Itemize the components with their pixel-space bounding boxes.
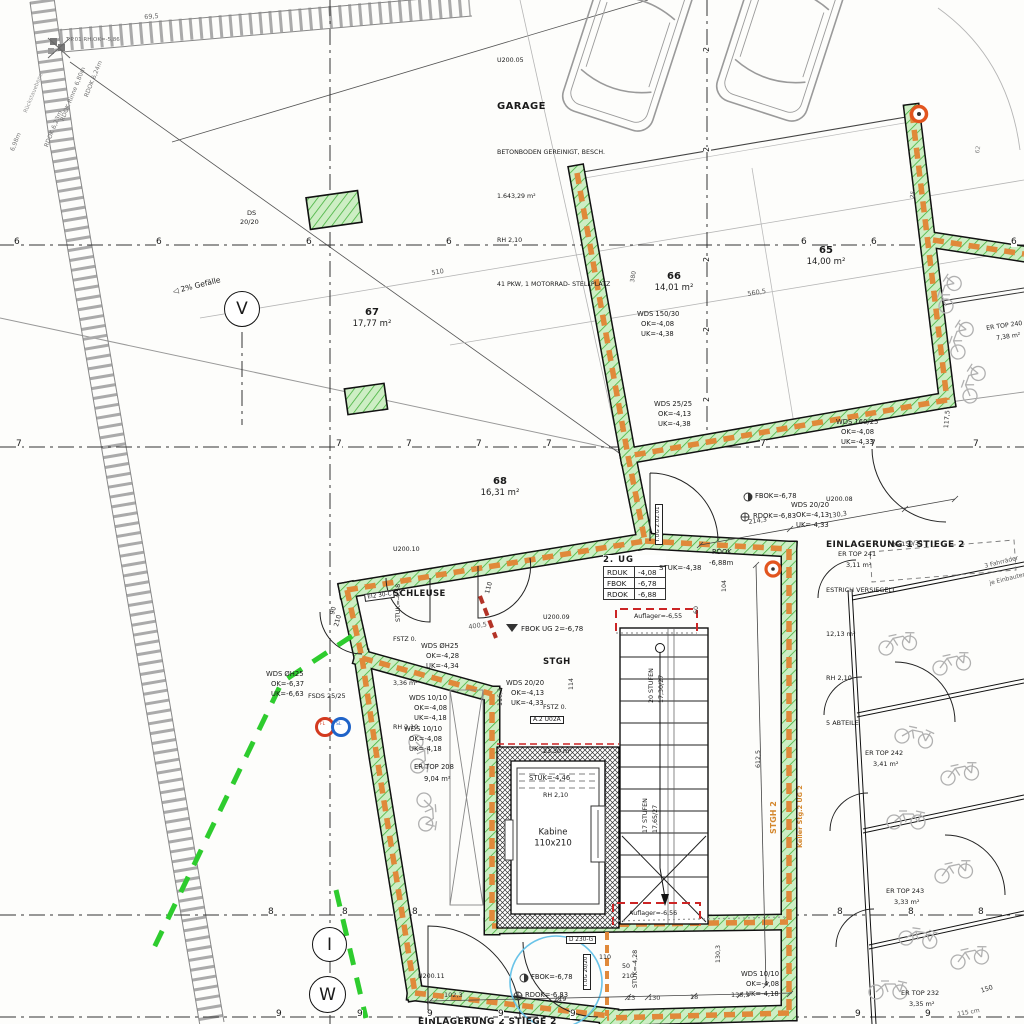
annotation-text: 7 — [336, 440, 342, 449]
level-table-grid: RDUK-4,08 FBOK-6,78 RDOK-6,88 — [603, 566, 666, 600]
annotation-text: 130,3 — [716, 945, 723, 963]
annotation-text: UK=-4,33 — [841, 439, 874, 446]
annotation-text: 62 — [975, 145, 983, 154]
annotation-text: 7 — [16, 440, 22, 449]
garage-room-code: U200.05 — [497, 57, 610, 64]
annotation-text: OK=-4,08 — [414, 705, 447, 712]
annotation-text: STUK=-4,46 — [529, 775, 570, 782]
annotation-text: 9 — [570, 1010, 576, 1019]
annotation-text: 7 — [760, 440, 766, 449]
annotation-text: UK=-4,18 — [414, 715, 447, 722]
annotation-text: 2 — [703, 327, 711, 332]
annotation-text: STGH 2 — [770, 801, 778, 834]
annotation-text: WDS 25/25 — [654, 401, 692, 408]
annotation-text: UK=-4,34 — [426, 663, 459, 670]
annotation-text: 9 — [357, 1010, 363, 1019]
annotation-text: UK=-4,33 — [511, 700, 544, 707]
room-number: 67 — [353, 307, 392, 319]
axis-letter: V — [236, 299, 248, 319]
annotation-text: OK=-4,08 — [746, 981, 779, 988]
annotation-text: 20/20 — [240, 219, 259, 226]
annotation-text: 2 — [703, 47, 711, 52]
annotation-text: 6 — [446, 238, 452, 247]
annotation-text: OK=-4,13 — [511, 690, 544, 697]
annotation-text: ER TOP 241 — [838, 551, 876, 558]
annotation-text: 9 — [498, 1010, 504, 1019]
annotation-text: OK=-4,13 — [658, 411, 691, 418]
annotation-text: ER TOP 243 — [886, 888, 924, 895]
annotation-text: WDS ØH25 — [421, 643, 459, 650]
annotation-text: STUK=-4,38 — [659, 565, 701, 572]
annotation-text: 8 — [342, 908, 348, 917]
einlagerung1-compartments: 5 ABTEILE — [826, 720, 965, 727]
lift-cabin-label: Kabine 110x210 — [534, 827, 571, 848]
room-number: 65 — [807, 245, 846, 257]
annotation-text: A.2 U02A — [530, 716, 564, 724]
room-label-67: 67 17,77 m² — [353, 307, 392, 329]
staircase — [620, 628, 708, 924]
annotation-text: 219 — [554, 996, 566, 1003]
annotation-text: Auflager=-6,56 — [629, 911, 677, 918]
annotation-text: WDS 10/10 — [409, 695, 447, 702]
room-number: 66 — [655, 271, 694, 283]
axis-circle-v: V — [224, 291, 260, 327]
level-row-value: -6,88 — [635, 589, 666, 600]
level-row-key: RDUK — [604, 567, 635, 578]
annotation-text: 7 — [476, 440, 482, 449]
garage-title-block: U200.05 GARAGE BETONBODEN GEREINIGT, BES… — [497, 20, 610, 307]
stgh-height: RH 2,10 — [543, 792, 572, 799]
annotation-text: 6 — [156, 238, 162, 247]
annotation-text: 2 — [703, 257, 711, 262]
annotation-text: T.P.01 RH.OK=-5,86 — [66, 38, 120, 44]
annotation-text: OK=-4,08 — [409, 736, 442, 743]
annotation-text: 17,65/27 — [653, 805, 660, 833]
annotation-text: SL — [336, 723, 341, 728]
annotation-text: FL — [320, 723, 325, 728]
annotation-text: FBOK=-6,78 — [531, 974, 573, 981]
annotation-text: T.UG 2.02.01 — [655, 504, 663, 545]
annotation-text: UK=-4,38 — [658, 421, 691, 428]
level-row-key: RDOK — [604, 589, 635, 600]
annotation-text: 210 — [622, 974, 634, 981]
annotation-text: 7 — [973, 440, 979, 449]
annotation-text: 138,3 — [731, 992, 750, 999]
level-row-value: -6,78 — [635, 578, 666, 589]
annotation-text: WDS 10/10 — [404, 726, 442, 733]
annotation-text: 2 — [703, 147, 711, 152]
annotation-text: ER TOP 232 — [901, 990, 939, 997]
annotation-text: -6,88m — [709, 560, 733, 567]
annotation-text: WDS 160/25 — [836, 419, 878, 426]
room-area: 17,77 m² — [353, 319, 392, 329]
room-area: 16,31 m² — [481, 488, 520, 498]
schleuse-room-code: U200.10 — [393, 546, 446, 553]
annotation-text: 18 — [690, 994, 698, 1001]
concrete-column-block — [306, 191, 362, 230]
annotation-text: 7 — [546, 440, 552, 449]
annotation-text: UK=-6,63 — [271, 691, 304, 698]
einlagerung1-title-block: U200.08 EINLAGERUNG 1 STIEGE 2 ESTRICH V… — [826, 459, 965, 746]
stgh-room-name: STGH — [543, 658, 572, 668]
annotation-text: 6 — [871, 238, 877, 247]
einlagerung1-height: RH 2,10 — [826, 675, 965, 682]
annotation-text: 8 — [412, 908, 418, 917]
annotation-text: UK=-4,33 — [796, 522, 829, 529]
axis-circle-i: I — [312, 927, 347, 962]
annotation-text: 130 — [648, 995, 660, 1002]
room-label-66: 66 14,01 m² — [655, 271, 694, 293]
room-area: 14,00 m² — [807, 257, 846, 267]
annotation-text: WDS 20/20 — [506, 680, 544, 687]
axis-circle-w: W — [309, 976, 346, 1013]
annotation-text: Auflager=-6,55 — [634, 614, 682, 621]
annotation-text: 3,11 m² — [846, 562, 871, 569]
annotation-text: UK=-4,38 — [641, 331, 674, 338]
annotation-text: 3,35 m² — [909, 1001, 934, 1008]
annotation-text: 6 — [1011, 238, 1017, 247]
annotation-text: OK=-4,08 — [841, 429, 874, 436]
annotation-text: 9 — [427, 1010, 433, 1019]
garage-parking-info: 41 PKW, 1 MOTORRAD- STELLPLATZ — [497, 281, 610, 288]
annotation-text: 116,3 — [498, 688, 505, 706]
annotation-text: 6 — [801, 238, 807, 247]
annotation-text: FSDS 25/25 — [308, 693, 346, 700]
garage-height: RH 2,10 — [497, 237, 610, 244]
annotation-text: 8 — [837, 908, 843, 917]
annotation-text: WDS 20/20 — [791, 502, 829, 509]
lift-cabin-name: Kabine — [534, 827, 571, 838]
garage-room-name: GARAGE — [497, 101, 610, 113]
annotation-text: Keller Stg.2 UG 2 — [797, 785, 804, 848]
annotation-text: 612,5 — [756, 750, 763, 768]
axis-letter: W — [319, 985, 336, 1005]
annotation-text: 9 — [276, 1010, 282, 1019]
annotation-text: 9,04 m² — [424, 776, 451, 783]
annotation-text: OK=-6,37 — [271, 681, 304, 688]
annotation-text: STUK=-4,58 — [396, 584, 403, 622]
annotation-text: 50 — [622, 964, 630, 971]
garage-area: 1.643,29 m² — [497, 193, 610, 200]
annotation-text: FBOK=-6,78 — [755, 493, 797, 500]
annotation-text: 20 STUFEN — [649, 668, 656, 703]
annotation-text: WDS 150/30 — [637, 311, 679, 318]
annotation-text: STUK=-4,28 — [633, 950, 640, 988]
level-table-title: 2. UG — [603, 555, 666, 565]
annotation-text: 9 — [855, 1010, 861, 1019]
annotation-text: UK=-4,18 — [409, 746, 442, 753]
level-table: 2. UG RDUK-4,08 FBOK-6,78 RDOK-6,88 — [603, 555, 666, 600]
annotation-text: WDS ØH25 — [266, 671, 304, 678]
annotation-text: 110 — [599, 955, 611, 962]
garage-floor-finish: BETONBODEN GEREINIGT, BESCH. — [497, 149, 610, 156]
annotation-text: 2 — [703, 397, 711, 402]
annotation-text: 104 — [722, 580, 729, 592]
annotation-text: 114 — [569, 678, 576, 690]
room-label-65: 65 14,00 m² — [807, 245, 846, 267]
annotation-text: ER TOP 242 — [865, 750, 903, 757]
annotation-text: 6 — [14, 238, 20, 247]
annotation-text: 69,5 — [144, 13, 159, 21]
annotation-text: RDOK — [712, 549, 732, 556]
annotation-text: 9 — [925, 1010, 931, 1019]
stgh-room-code: U200.09 — [543, 614, 572, 621]
annotation-text: 7 — [406, 440, 412, 449]
annotation-text: T.UG 20/20 — [583, 954, 591, 990]
annotation-text: 8 — [268, 908, 274, 917]
annotation-text: UK=-4,18 — [746, 991, 779, 998]
einlagerung1-floor: ESTRICH VERSIEGELT — [826, 587, 965, 594]
axis-letter: I — [327, 935, 332, 955]
annotation-text: FBOK UG 2=-6,78 — [521, 626, 583, 633]
annotation-text: 3,41 m² — [873, 761, 898, 768]
annotation-text: 102,3 — [444, 992, 463, 999]
annotation-text: 17 STUFEN — [643, 798, 650, 833]
einlagerung1-room-code: U200.08 — [826, 496, 965, 503]
einlagerung2-room-name: EINLAGERUNG 2 STIEGE 2 — [418, 1017, 557, 1024]
annotation-text: 23 — [627, 995, 635, 1002]
annotation-text: WDS 10/10 — [741, 971, 779, 978]
schleuse-area: 3,36 m² — [393, 680, 446, 687]
annotation-text: 6 — [306, 238, 312, 247]
room-area: 14,01 m² — [655, 283, 694, 293]
lift-cabin-size: 110x210 — [534, 838, 571, 849]
level-row-key: FBOK — [604, 578, 635, 589]
annotation-text: 25 — [910, 190, 918, 199]
floor-plan-canvas: U200.05 GARAGE BETONBODEN GEREINIGT, BES… — [0, 0, 1024, 1024]
annotation-text: 8 — [908, 908, 914, 917]
annotation-text: 8 — [978, 908, 984, 917]
annotation-text: OK=-4,28 — [426, 653, 459, 660]
stgh-floor: FSTZ 0. — [543, 704, 572, 711]
annotation-text: 17,30/27 — [659, 675, 666, 703]
annotation-text: 60 — [694, 606, 701, 614]
stgh-area: 23,30 m² — [543, 748, 572, 755]
room-number: 68 — [481, 476, 520, 488]
concrete-column-block — [344, 383, 387, 414]
annotation-text: DS — [247, 210, 256, 217]
annotation-text: ER TOP 208 — [414, 764, 454, 771]
annotation-text: OK=-4,08 — [641, 321, 674, 328]
einlagerung1-area: 12,13 m² — [826, 631, 965, 638]
annotation-text: 3,33 m² — [894, 899, 919, 906]
annotation-text: D 230-G — [566, 936, 596, 944]
room-label-68: 68 16,31 m² — [481, 476, 520, 498]
annotation-text: OK=-4,13 — [796, 512, 829, 519]
